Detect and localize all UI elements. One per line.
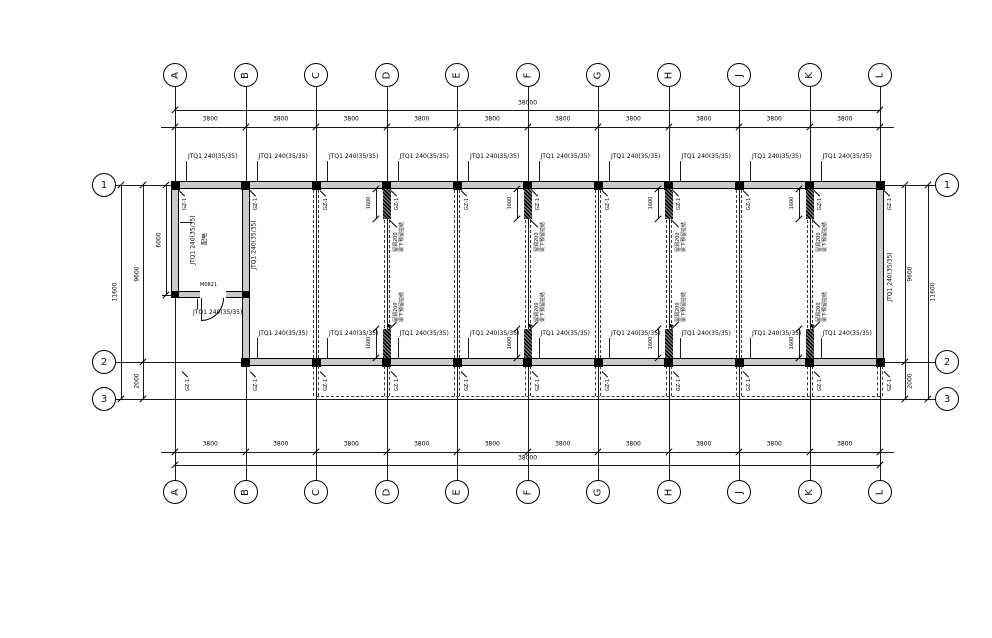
canopy-outline-side bbox=[877, 366, 878, 396]
canopy-outline-side bbox=[384, 366, 385, 396]
leader-line bbox=[813, 190, 819, 196]
column-tag-C-bottom: GZ-1 bbox=[324, 379, 330, 391]
canopy-outline-side bbox=[736, 366, 737, 396]
grid-bubble-1-left: 1 bbox=[92, 173, 116, 197]
partition-J-line bbox=[741, 190, 742, 358]
grid-bubble-C-bottom: C bbox=[304, 480, 328, 504]
grid-bubble-G-top: G bbox=[586, 63, 610, 87]
dimension-2000-left: 2000 bbox=[135, 373, 142, 388]
dimension-bay-top: 3800 bbox=[203, 117, 218, 124]
dimension-bay-top: 3800 bbox=[344, 117, 359, 124]
grid-letter: D bbox=[381, 71, 392, 79]
leader-line bbox=[884, 371, 890, 377]
grid-bubble-L-top: L bbox=[868, 63, 892, 87]
grid-letter: G bbox=[593, 488, 604, 496]
canopy-outline-side bbox=[807, 366, 808, 396]
dim-line-total-bottom bbox=[175, 465, 880, 466]
grid-bubble-D-top: D bbox=[375, 63, 399, 87]
dimension-bay-top: 3800 bbox=[767, 117, 782, 124]
column-tag-L-bottom: GZ-1 bbox=[888, 379, 894, 391]
leader-line bbox=[531, 190, 537, 196]
grid-bubble-K-top: K bbox=[798, 63, 822, 87]
grid-letter: F bbox=[522, 72, 533, 78]
canopy-outline-bottom bbox=[316, 396, 880, 397]
stub-dim-line bbox=[799, 329, 800, 358]
grid-line-vertical-C bbox=[316, 86, 317, 481]
opening-stub-K-top bbox=[806, 189, 814, 219]
leader-line bbox=[884, 190, 890, 196]
grid-letter: F bbox=[522, 489, 533, 495]
stub-dim-line bbox=[517, 189, 518, 219]
wall-tag-bottom-bay: JTQ1 240(35/35) bbox=[541, 331, 590, 338]
column-tag-E-bottom: GZ-1 bbox=[465, 379, 471, 391]
grid-line-vertical-J bbox=[739, 86, 740, 481]
dimension-overall-left: 11600 bbox=[113, 282, 120, 301]
grid-bubble-A-bottom: A bbox=[163, 480, 187, 504]
dimension-bay-top: 3800 bbox=[485, 117, 500, 124]
dim-line-total-top bbox=[175, 110, 880, 111]
column-tag-L-top: GZ-1 bbox=[888, 198, 894, 210]
dimension-bay-top: 3800 bbox=[555, 117, 570, 124]
wall-tag-leader bbox=[539, 338, 540, 358]
leader-line bbox=[249, 371, 255, 377]
leader-line bbox=[461, 190, 467, 196]
grid-line-vertical-H bbox=[669, 86, 670, 481]
stub-dim-line bbox=[658, 189, 659, 219]
grid-letter: E bbox=[451, 489, 462, 495]
dim-line-overall-left bbox=[121, 185, 122, 399]
wall-tag-leader bbox=[468, 161, 469, 181]
door-label: M0821 bbox=[200, 283, 217, 289]
grid-bubble-B-bottom: B bbox=[234, 480, 258, 504]
dimension-bay-bottom: 3800 bbox=[837, 442, 852, 449]
grid-letter: H bbox=[663, 71, 674, 79]
opening-note-line: 梁下预留拉结 bbox=[681, 292, 687, 322]
column-tag-D-bottom: GZ-1 bbox=[395, 379, 401, 391]
wall-tag-leader bbox=[468, 338, 469, 358]
grid-letter: A bbox=[170, 72, 181, 79]
wall-tag-bottom-bay: JTQ1 240(35/35) bbox=[823, 331, 872, 338]
leader-line bbox=[602, 371, 608, 377]
wall-tag-room-south: JTQ1 240(35/35) bbox=[193, 310, 242, 317]
dimension-bay-bottom: 3800 bbox=[344, 442, 359, 449]
canopy-outline-side bbox=[666, 366, 667, 396]
grid-number: 3 bbox=[944, 394, 950, 405]
column-tag-C-top: GZ-1 bbox=[324, 198, 330, 210]
opening-note-line: 留洞200 bbox=[393, 292, 399, 322]
dimension-9600-left: 9600 bbox=[135, 266, 142, 281]
leader-line bbox=[602, 190, 608, 196]
opening-note-F-lower: 留洞200梁下预留拉结 bbox=[534, 292, 546, 322]
wall-tag-leader bbox=[750, 161, 751, 181]
dimension-total-bottom: 38000 bbox=[518, 456, 537, 463]
grid-number: 1 bbox=[944, 180, 950, 191]
grid-bubble-E-top: E bbox=[445, 63, 469, 87]
leader-line bbox=[182, 371, 188, 377]
canopy-outline-side bbox=[595, 366, 596, 396]
grid-letter: H bbox=[663, 488, 674, 496]
dimension-bay-bottom: 3800 bbox=[767, 442, 782, 449]
wall-tag-leader bbox=[609, 338, 610, 358]
column-marker-L-grid1 bbox=[876, 181, 885, 190]
grid-bubble-C-top: C bbox=[304, 63, 328, 87]
dimension-bay-bottom: 3800 bbox=[203, 442, 218, 449]
column-tag-extra: GZ-1 bbox=[186, 379, 192, 391]
opening-note-line: 留洞200 bbox=[816, 292, 822, 322]
wall-tag-grid-L: JTQ1 240(35/35) bbox=[888, 252, 895, 301]
grid-letter: C bbox=[310, 489, 321, 496]
dimension-9600-right: 9600 bbox=[908, 266, 915, 281]
opening-note-line: 梁下预留拉结 bbox=[822, 292, 828, 322]
leader-line bbox=[743, 371, 749, 377]
wall-tag-top-bay: JTQ1 240(35/35) bbox=[470, 154, 519, 161]
opening-stub-D-top bbox=[383, 189, 391, 219]
column-marker-J-grid1 bbox=[735, 181, 744, 190]
stub-dim-line bbox=[376, 189, 377, 219]
column-tag-K-top: GZ-1 bbox=[818, 198, 824, 210]
leader-line bbox=[390, 371, 396, 377]
wall-tag-leader bbox=[197, 299, 198, 309]
grid-letter: B bbox=[240, 489, 251, 496]
grid-bubble-3-left: 3 bbox=[92, 387, 116, 411]
canopy-outline-side bbox=[525, 366, 526, 396]
grid-bubble-J-bottom: J bbox=[727, 480, 751, 504]
dimension-bay-top: 3800 bbox=[626, 117, 641, 124]
canopy-outline-side bbox=[812, 366, 813, 396]
canopy-outline-side bbox=[313, 366, 314, 396]
column-tag-H-bottom: GZ-1 bbox=[677, 379, 683, 391]
dim-line-rows-right bbox=[905, 185, 906, 399]
opening-note-line: 梁下预留拉结 bbox=[399, 222, 405, 252]
stub-dimension-top: 1600 bbox=[367, 197, 373, 210]
wall-tag-leader bbox=[257, 338, 258, 358]
grid-bubble-1-right: 1 bbox=[935, 173, 959, 197]
partition-J-line bbox=[736, 190, 737, 358]
grid-number: 2 bbox=[101, 357, 107, 368]
dimension-bay-top: 3800 bbox=[414, 117, 429, 124]
grid-number: 2 bbox=[944, 357, 950, 368]
dim-line-room-left bbox=[166, 185, 167, 295]
grid-letter: A bbox=[170, 489, 181, 496]
leader-line bbox=[461, 371, 467, 377]
column-tag-G-top: GZ-1 bbox=[606, 198, 612, 210]
canopy-outline-side bbox=[454, 366, 455, 396]
exterior-wall-grid2 bbox=[242, 358, 884, 366]
grid-letter: J bbox=[733, 491, 744, 494]
wall-tag-leader bbox=[609, 161, 610, 181]
wall-tag-grid-B: JTQ1 240(35/35) bbox=[252, 220, 259, 269]
column-marker-B-grid1 bbox=[241, 181, 250, 190]
grid-bubble-H-top: H bbox=[657, 63, 681, 87]
stub-dimension-bottom: 1600 bbox=[367, 337, 373, 350]
grid-line-horizontal-3 bbox=[114, 399, 936, 400]
grid-number: 1 bbox=[101, 180, 107, 191]
stub-dimension-bottom: 1600 bbox=[790, 337, 796, 350]
wall-tag-bottom-bay: JTQ1 240(35/35) bbox=[259, 331, 308, 338]
column-marker-room-sw bbox=[171, 291, 179, 298]
canopy-outline-side bbox=[741, 366, 742, 396]
dim-line-rows-left bbox=[143, 185, 144, 399]
grid-letter: J bbox=[733, 74, 744, 77]
opening-note-line: 梁下预留拉结 bbox=[822, 222, 828, 252]
exterior-wall-grid-A bbox=[171, 181, 179, 298]
dimension-bay-bottom: 3800 bbox=[414, 442, 429, 449]
opening-note-line: 梁下预留拉结 bbox=[399, 292, 405, 322]
grid-line-vertical-K bbox=[810, 86, 811, 481]
wall-tag-top-bay: JTQ1 240(35/35) bbox=[611, 154, 660, 161]
stub-dim-line bbox=[658, 329, 659, 358]
wall-tag-leader bbox=[821, 338, 822, 358]
stub-dimension-top: 1600 bbox=[790, 197, 796, 210]
grid-bubble-3-right: 3 bbox=[935, 387, 959, 411]
column-tag-A-top: GZ-1 bbox=[183, 198, 189, 210]
grid-bubble-F-top: F bbox=[516, 63, 540, 87]
grid-line-vertical-D bbox=[387, 86, 388, 481]
floor-plan-sheet: AABBCCDDEEFFGGHHJJKKLL112233380003800380… bbox=[0, 0, 992, 638]
column-marker-G-grid1 bbox=[594, 181, 603, 190]
stub-dimension-bottom: 1600 bbox=[508, 337, 514, 350]
partition-E-line bbox=[454, 190, 455, 358]
dimension-bay-top: 3800 bbox=[273, 117, 288, 124]
wall-tag-bottom-bay: JTQ1 240(35/35) bbox=[400, 331, 449, 338]
dimension-bay-bottom: 3800 bbox=[696, 442, 711, 449]
wall-tag-leader bbox=[680, 338, 681, 358]
opening-stub-F-bottom bbox=[524, 329, 532, 358]
wall-tag-leader bbox=[186, 161, 187, 181]
partition-C-line bbox=[313, 190, 314, 358]
column-marker-C-grid1 bbox=[312, 181, 321, 190]
leader-line bbox=[743, 190, 749, 196]
wall-tag-top-bay: JTQ1 240(35/35) bbox=[752, 154, 801, 161]
room-name-label: 配电 bbox=[203, 233, 210, 245]
grid-letter: G bbox=[593, 71, 604, 79]
opening-stub-H-bottom bbox=[665, 329, 673, 358]
column-tag-F-bottom: GZ-1 bbox=[536, 379, 542, 391]
grid-bubble-L-bottom: L bbox=[868, 480, 892, 504]
dimension-bay-top: 3800 bbox=[837, 117, 852, 124]
wall-tag-top-bay: JTQ1 240(35/35) bbox=[541, 154, 590, 161]
partition-C-line bbox=[318, 190, 319, 358]
opening-stub-F-top bbox=[524, 189, 532, 219]
dimension-bay-bottom: 3800 bbox=[273, 442, 288, 449]
grid-letter: D bbox=[381, 488, 392, 496]
dimension-bay-bottom: 3800 bbox=[555, 442, 570, 449]
opening-note-D-lower: 留洞200梁下预留拉结 bbox=[393, 292, 405, 322]
grid-letter: L bbox=[874, 489, 885, 495]
leader-line bbox=[531, 371, 537, 377]
leader-line bbox=[672, 190, 678, 196]
grid-letter: K bbox=[804, 72, 815, 79]
column-marker-A-grid1 bbox=[171, 181, 180, 190]
wall-tag-leader bbox=[180, 222, 192, 223]
wall-tag-leader bbox=[327, 338, 328, 358]
grid-bubble-2-left: 2 bbox=[92, 350, 116, 374]
stub-dimension-bottom: 1600 bbox=[649, 337, 655, 350]
wall-tag-leader bbox=[398, 338, 399, 358]
grid-bubble-H-bottom: H bbox=[657, 480, 681, 504]
column-tag-J-top: GZ-1 bbox=[747, 198, 753, 210]
column-tag-F-top: GZ-1 bbox=[536, 198, 542, 210]
column-tag-H-top: GZ-1 bbox=[677, 198, 683, 210]
canopy-outline-side bbox=[671, 366, 672, 396]
partition-E-line bbox=[459, 190, 460, 358]
wall-tag-leader bbox=[257, 161, 258, 181]
grid-bubble-2-right: 2 bbox=[935, 350, 959, 374]
column-marker-B-grid2 bbox=[241, 358, 250, 367]
column-marker-E-grid1 bbox=[453, 181, 462, 190]
grid-letter: B bbox=[240, 72, 251, 79]
partition-G-line bbox=[595, 190, 596, 358]
wall-tag-leader bbox=[398, 161, 399, 181]
wall-tag-leader bbox=[680, 161, 681, 181]
wall-tag-top-bay: JTQ1 240(35/35) bbox=[188, 154, 237, 161]
column-tag-K-bottom: GZ-1 bbox=[818, 379, 824, 391]
grid-bubble-F-bottom: F bbox=[516, 480, 540, 504]
leader-line bbox=[813, 371, 819, 377]
stub-dimension-top: 1600 bbox=[649, 197, 655, 210]
wall-tag-leader bbox=[539, 161, 540, 181]
leader-line bbox=[390, 190, 396, 196]
grid-bubble-B-top: B bbox=[234, 63, 258, 87]
opening-stub-H-top bbox=[665, 189, 673, 219]
dimension-total-top: 38000 bbox=[518, 101, 537, 108]
opening-note-line: 梁下预留拉结 bbox=[681, 222, 687, 252]
wall-tag-top-bay: JTQ1 240(35/35) bbox=[400, 154, 449, 161]
column-tag-E-top: GZ-1 bbox=[465, 198, 471, 210]
grid-letter: L bbox=[874, 72, 885, 78]
stub-dim-line bbox=[799, 189, 800, 219]
column-tag-B-bottom: GZ-1 bbox=[254, 379, 260, 391]
wall-tag-bottom-bay: JTQ1 240(35/35) bbox=[682, 331, 731, 338]
grid-bubble-E-bottom: E bbox=[445, 480, 469, 504]
column-tag-D-top: GZ-1 bbox=[395, 198, 401, 210]
opening-note-line: 留洞200 bbox=[675, 292, 681, 322]
stub-dimension-top: 1600 bbox=[508, 197, 514, 210]
stub-dim-line bbox=[517, 329, 518, 358]
column-tag-J-bottom: GZ-1 bbox=[747, 379, 753, 391]
opening-note-line: 梁下预留拉结 bbox=[540, 292, 546, 322]
leader-line bbox=[249, 190, 255, 196]
leader-line bbox=[320, 371, 326, 377]
dimension-bay-top: 3800 bbox=[696, 117, 711, 124]
partition-G-line bbox=[600, 190, 601, 358]
wall-tag-top-bay: JTQ1 240(35/35) bbox=[329, 154, 378, 161]
dimension-overall-right: 11600 bbox=[931, 282, 938, 301]
opening-stub-K-bottom bbox=[806, 329, 814, 358]
dimension-bay-bottom: 3800 bbox=[485, 442, 500, 449]
opening-note-H-lower: 留洞200梁下预留拉结 bbox=[675, 292, 687, 322]
wall-tag-leader bbox=[750, 338, 751, 358]
canopy-outline-side bbox=[459, 366, 460, 396]
grid-bubble-A-top: A bbox=[163, 63, 187, 87]
grid-letter: C bbox=[310, 72, 321, 79]
column-tag-G-bottom: GZ-1 bbox=[606, 379, 612, 391]
grid-bubble-D-bottom: D bbox=[375, 480, 399, 504]
dimension-2000-right: 2000 bbox=[908, 373, 915, 388]
canopy-outline-side bbox=[530, 366, 531, 396]
grid-letter: E bbox=[451, 72, 462, 78]
wall-tag-leader bbox=[821, 161, 822, 181]
opening-note-K-lower: 留洞200梁下预留拉结 bbox=[816, 292, 828, 322]
column-marker-room-se bbox=[242, 291, 250, 298]
canopy-outline-side bbox=[600, 366, 601, 396]
column-tag-B-top: GZ-1 bbox=[254, 198, 260, 210]
grid-number: 3 bbox=[101, 394, 107, 405]
opening-note-line: 梁下预留拉结 bbox=[540, 222, 546, 252]
opening-stub-D-bottom bbox=[383, 329, 391, 358]
wall-tag-top-bay: JTQ1 240(35/35) bbox=[823, 154, 872, 161]
grid-letter: K bbox=[804, 489, 815, 496]
grid-line-vertical-E bbox=[457, 86, 458, 481]
wall-tag-top-bay: JTQ1 240(35/35) bbox=[682, 154, 731, 161]
leader-line bbox=[179, 190, 185, 196]
canopy-outline-side bbox=[882, 366, 883, 396]
dimension-room-depth: 6000 bbox=[157, 232, 164, 247]
grid-bubble-G-bottom: G bbox=[586, 480, 610, 504]
stub-dim-line bbox=[376, 329, 377, 358]
dimension-bay-bottom: 3800 bbox=[626, 442, 641, 449]
grid-bubble-K-bottom: K bbox=[798, 480, 822, 504]
canopy-outline-side bbox=[318, 366, 319, 396]
canopy-outline-side bbox=[389, 366, 390, 396]
grid-bubble-J-top: J bbox=[727, 63, 751, 87]
leader-line bbox=[320, 190, 326, 196]
grid-line-vertical-F bbox=[528, 86, 529, 481]
exterior-wall-grid-L bbox=[876, 181, 884, 366]
leader-line bbox=[672, 371, 678, 377]
wall-tag-leader bbox=[327, 161, 328, 181]
grid-line-vertical-G bbox=[598, 86, 599, 481]
opening-note-line: 留洞200 bbox=[534, 292, 540, 322]
wall-grid-B bbox=[242, 181, 250, 366]
wall-tag-top-bay: JTQ1 240(35/35) bbox=[259, 154, 308, 161]
